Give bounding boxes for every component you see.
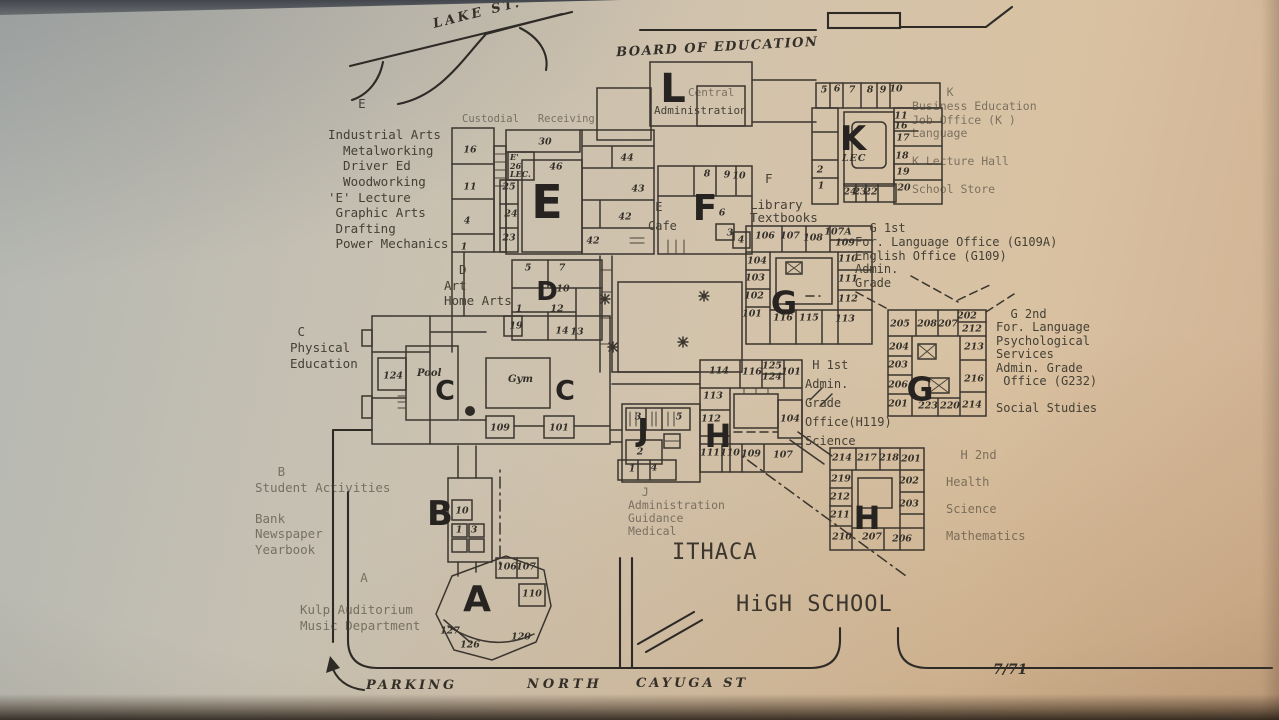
room-label: 8 [867,85,874,96]
room-label: 3 [471,525,478,536]
h-first-legend: H 1stAdmin.GradeOffice(H119)Science [805,356,892,451]
k-legend-line [912,169,1037,183]
room-label: 220 [940,401,960,412]
room-label: 19 [896,167,909,178]
room-label: 11 [463,182,476,193]
room-label: 102 [744,291,764,302]
h-first-legend-line: Grade [805,394,892,413]
b-legend-line: B [255,464,390,480]
room-label: 19 [509,321,522,332]
l-building-sublabel-bottom: Administration [654,104,747,117]
d-legend-line: D [444,262,512,278]
room-label: 116 [773,313,793,324]
room-label: 16 [463,145,476,156]
g-first-legend-line: For. Language Office (G109A) [855,236,1057,250]
room-label: 125 [762,361,782,372]
d-legend-line: Home Arts [444,293,512,309]
a-legend-line: Kulp Auditorium [300,602,420,618]
g-second-legend-line: Office (G232) [996,375,1097,388]
parking-label: PARKING [366,678,457,693]
school-name-line2: HiGH SCHOOL [736,592,893,617]
room-label: 4 [464,216,471,227]
k-legend-line [912,141,1037,155]
room-label: 114 [709,366,729,377]
room-label: 201 [901,454,921,465]
room-label: 17 [896,133,909,144]
room-label: 10 [889,84,902,95]
north-label-line: NORTH [527,677,603,692]
room-label: 213 [964,342,984,353]
e-lecture-room-label: E'26LEC. [510,153,531,179]
room-label: 13 [570,327,583,338]
date-stamp-line: 7/71 [993,662,1027,678]
parking-label-line: PARKING [366,678,457,693]
room-label: 1 [629,464,636,475]
b-legend-line: Bank [255,511,390,527]
d-legend-line: Art [444,278,512,294]
room-label: 217 [857,453,877,464]
e-wing-legend-line: Power Mechanics [328,236,448,252]
room-label: 124 [383,371,403,382]
e-wing-legend-line: Driver Ed [328,158,448,174]
room-label: 109 [835,238,855,249]
room-label: 104 [780,414,800,425]
room-label: 204 [889,342,909,353]
building-letter-h-13: H [854,502,881,534]
custodial-label: Custodial Receiving [462,113,595,125]
room-label: 107 [780,231,800,242]
room-label: 5 [525,263,532,274]
room-label: 116 [742,367,762,378]
room-label: 214 [962,400,982,411]
room-label: 202 [957,311,977,322]
cayuga-st-label: CAYUGA ST [636,676,748,691]
room-label: 216 [964,374,984,385]
room-label: 1 [516,304,523,315]
room-label: 115 [799,313,819,324]
e-wing-legend-line [328,112,448,128]
g-first-legend: G 1stFor. Language Office (G109A)English… [855,222,1057,291]
pool-label-line: Pool [417,368,441,379]
room-label: 106 [497,562,517,573]
room-label: 127 [440,626,460,637]
courtyard [618,282,742,372]
e-wing-legend-line: Metalworking [328,143,448,159]
room-label: 111 [700,448,720,459]
a-legend-line: A [300,570,420,586]
room-label: 205 [890,319,910,330]
g-first-legend-line: Grade [855,277,1057,291]
room-label: 10 [556,284,569,295]
north-label: NORTH [527,677,603,692]
custodial-label-line: Custodial Receiving [462,113,595,125]
a-legend: A Kulp AuditoriumMusic Department [300,570,420,634]
room-label: 7 [559,263,566,274]
room-label: 112 [838,294,858,305]
room-label: 1 [456,525,463,536]
room-label: 46 [549,162,562,173]
room-label: 104 [747,256,767,267]
h-second-legend-line: Science [946,496,1025,523]
school-name-line1: ITHACA [672,540,757,565]
room-label: 101 [781,367,801,378]
room-label: 6 [834,84,841,95]
k-lecture-room-label: LEC [842,153,866,164]
room-label: 218 [879,453,899,464]
room-label: 223 [918,401,938,412]
k-legend-line: Job Office (K ) [912,114,1037,128]
h-second-legend: H 2ndHealthScienceMathematics [946,442,1025,550]
g-second-legend-line: Social Studies [996,402,1097,415]
room-label: 12 [550,304,563,315]
room-label: 113 [703,391,723,402]
room-label: 10 [455,506,468,517]
room-label: 23 [502,233,515,244]
b-legend-line: Student Activities [255,480,390,496]
room-label: 24 [504,209,517,220]
c-legend-line: Physical [290,340,358,356]
room-label: 42 [586,236,599,247]
building-letter-c-5: C [435,378,455,405]
g-first-legend-line: English Office (G109) [855,250,1057,264]
room-label: 9 [724,170,731,181]
b-legend-line: Yearbook [255,542,390,558]
building-letter-c-6: C [555,378,575,405]
e-wing-legend-line: E [328,96,448,112]
building-letter-f-2: F [693,191,718,227]
building-l-board [597,62,816,140]
k-legend-line: Language [912,127,1037,141]
room-label: 3 [727,228,734,239]
date-stamp: 7/71 [993,662,1027,678]
h-second-legend-line: H 2nd [946,442,1025,469]
room-label: 10 [732,171,745,182]
g-first-legend-line: G 1st [855,222,1057,236]
building-letter-b-10: B [427,497,453,531]
room-label: 43 [631,184,644,195]
l-building-sublabel-top: Central [688,86,734,99]
room-label: 109 [490,423,510,434]
g-first-legend-line: Admin. [855,263,1057,277]
building-letter-d-4: D [536,279,558,305]
room-label: 16 [894,121,907,132]
e-wing-legend-line: Industrial Arts [328,127,448,143]
room-label: 126 [460,640,480,651]
h-first-legend-line: Office(H119) [805,413,892,432]
room-label: 212 [830,492,850,503]
room-label: 18 [895,151,908,162]
c-legend-line: Education [290,356,358,372]
room-label: 211 [830,510,850,521]
room-label: 5 [676,412,683,423]
h-first-legend-line: H 1st [805,356,892,375]
room-label: 107 [773,450,793,461]
room-label: 113 [835,314,855,325]
room-label: 207 [938,319,958,330]
room-label: 1 [461,242,468,253]
photo-edge-right [1261,0,1279,720]
library-legend-line: Textbooks [750,211,818,224]
g-second-legend: G 2ndFor. LanguagePsychologicalServicesA… [996,308,1097,415]
b-legend-line: Newspaper [255,526,390,542]
k-legend-line: School Store [912,183,1037,197]
h-second-legend-line: Health [946,469,1025,496]
j-legend: JAdministrationGuidanceMedical [628,486,725,538]
room-label: 25 [502,182,515,193]
room-label: 42 [618,212,631,223]
cafe-label: ECafe [648,198,677,236]
room-label: 9 [880,85,887,96]
room-label: 108 [803,233,823,244]
room-label: 214 [832,453,852,464]
room-label: 210 [832,532,852,543]
room-label: 207 [862,532,882,543]
room-label: 208 [917,319,937,330]
room-label: 110 [720,448,740,459]
building-letter-e-1: E [531,179,562,225]
g-second-legend-line [996,388,1097,401]
cafe-label-line: Cafe [648,217,677,236]
l-building-sublabel-top-line: Central [688,86,734,99]
d-legend: DArtHome Arts [444,262,512,309]
room-label: 109 [741,449,761,460]
room-label: 2 [637,447,644,458]
k-legend: KBusiness EducationJob Office (K )Langua… [912,86,1037,196]
h-first-legend-line: Admin. [805,375,892,394]
room-label: 202 [899,476,919,487]
pool-label: Pool [417,368,441,379]
room-label: 212 [962,324,982,335]
room-label: 206 [892,534,912,545]
room-label: 5 [821,85,828,96]
room-label: 203 [899,499,919,510]
room-label: 20 [897,183,910,194]
roads-linework [333,7,1272,668]
b-legend: BStudent Activities BankNewspaperYearboo… [255,464,390,557]
h-first-legend-line: Science [805,432,892,451]
k-lecture-room-label-line: LEC [842,153,866,164]
library-legend-line: F [750,172,818,185]
e-wing-legend-line: Woodworking [328,174,448,190]
b-legend-line [255,495,390,511]
building-b [448,470,500,566]
e-wing-legend-line: 'E' Lecture [328,190,448,206]
room-label: 120 [511,632,531,643]
room-label: 4 [738,235,745,246]
room-label: 8 [704,169,711,180]
room-label: 30 [538,137,551,148]
school-name-line1-line: ITHACA [672,540,757,565]
room-label: 44 [620,153,633,164]
room-label: 4 [651,463,658,474]
e-lecture-room-label-line: LEC. [510,170,531,179]
g-second-legend-line: Admin. Grade [996,362,1097,375]
room-label: 107A [824,227,851,238]
room-label: 3 [635,412,642,423]
gym-label-line: Gym [508,374,533,385]
room-label: 7 [849,85,856,96]
building-letter-k-3: K [840,122,866,156]
g-second-legend-line: Services [996,348,1097,361]
c-legend: CPhysicalEducation [290,324,358,372]
a-legend-line: Music Department [300,618,420,634]
cayuga-st-label-line: CAYUGA ST [636,676,748,691]
building-letter-a-11: A [463,582,491,618]
k-legend-line: Business Education [912,100,1037,114]
k-legend-line: K [912,86,1037,100]
room-label: 112 [701,414,721,425]
room-label: 22 [864,187,877,198]
h-second-legend-line: Mathematics [946,523,1025,550]
e-wing-legend: E Industrial Arts Metalworking Driver Ed… [328,96,448,252]
g-second-legend-line: Psychological [996,335,1097,348]
cafe-label-line: E [648,198,677,217]
g-second-legend-line: For. Language [996,321,1097,334]
room-label: 103 [745,273,765,284]
e-wing-legend-line: Drafting [328,221,448,237]
library-legend: F LibraryTextbooks [750,172,818,224]
room-label: 110 [522,589,542,600]
photo-edge-bottom [0,694,1279,720]
room-label: 1 [818,181,825,192]
g-second-legend-line: G 2nd [996,308,1097,321]
room-label: 14 [555,326,568,337]
room-label: 6 [719,208,726,219]
a-legend-line [300,586,420,602]
k-legend-line: K Lecture Hall [912,155,1037,169]
room-label: 124 [762,372,782,383]
room-label: 107 [516,562,536,573]
room-label: 101 [742,309,762,320]
building-letter-l-0: L [660,69,686,109]
room-label: 219 [831,474,851,485]
room-label: 106 [755,231,775,242]
gym-label: Gym [508,374,533,385]
e-wing-legend-line: Graphic Arts [328,205,448,221]
parking-arrow [326,656,364,690]
c-legend-line: C [290,324,358,340]
campus-map-photo: LEFKDCCGHJBAGH 1611413025242346444342425… [0,0,1279,720]
l-building-sublabel-bottom-line: Administration [654,104,747,117]
school-name-line2-line: HiGH SCHOOL [736,592,893,617]
room-label: 101 [549,423,569,434]
j-legend-line: Medical [628,525,725,538]
tree-symbols [600,291,709,352]
